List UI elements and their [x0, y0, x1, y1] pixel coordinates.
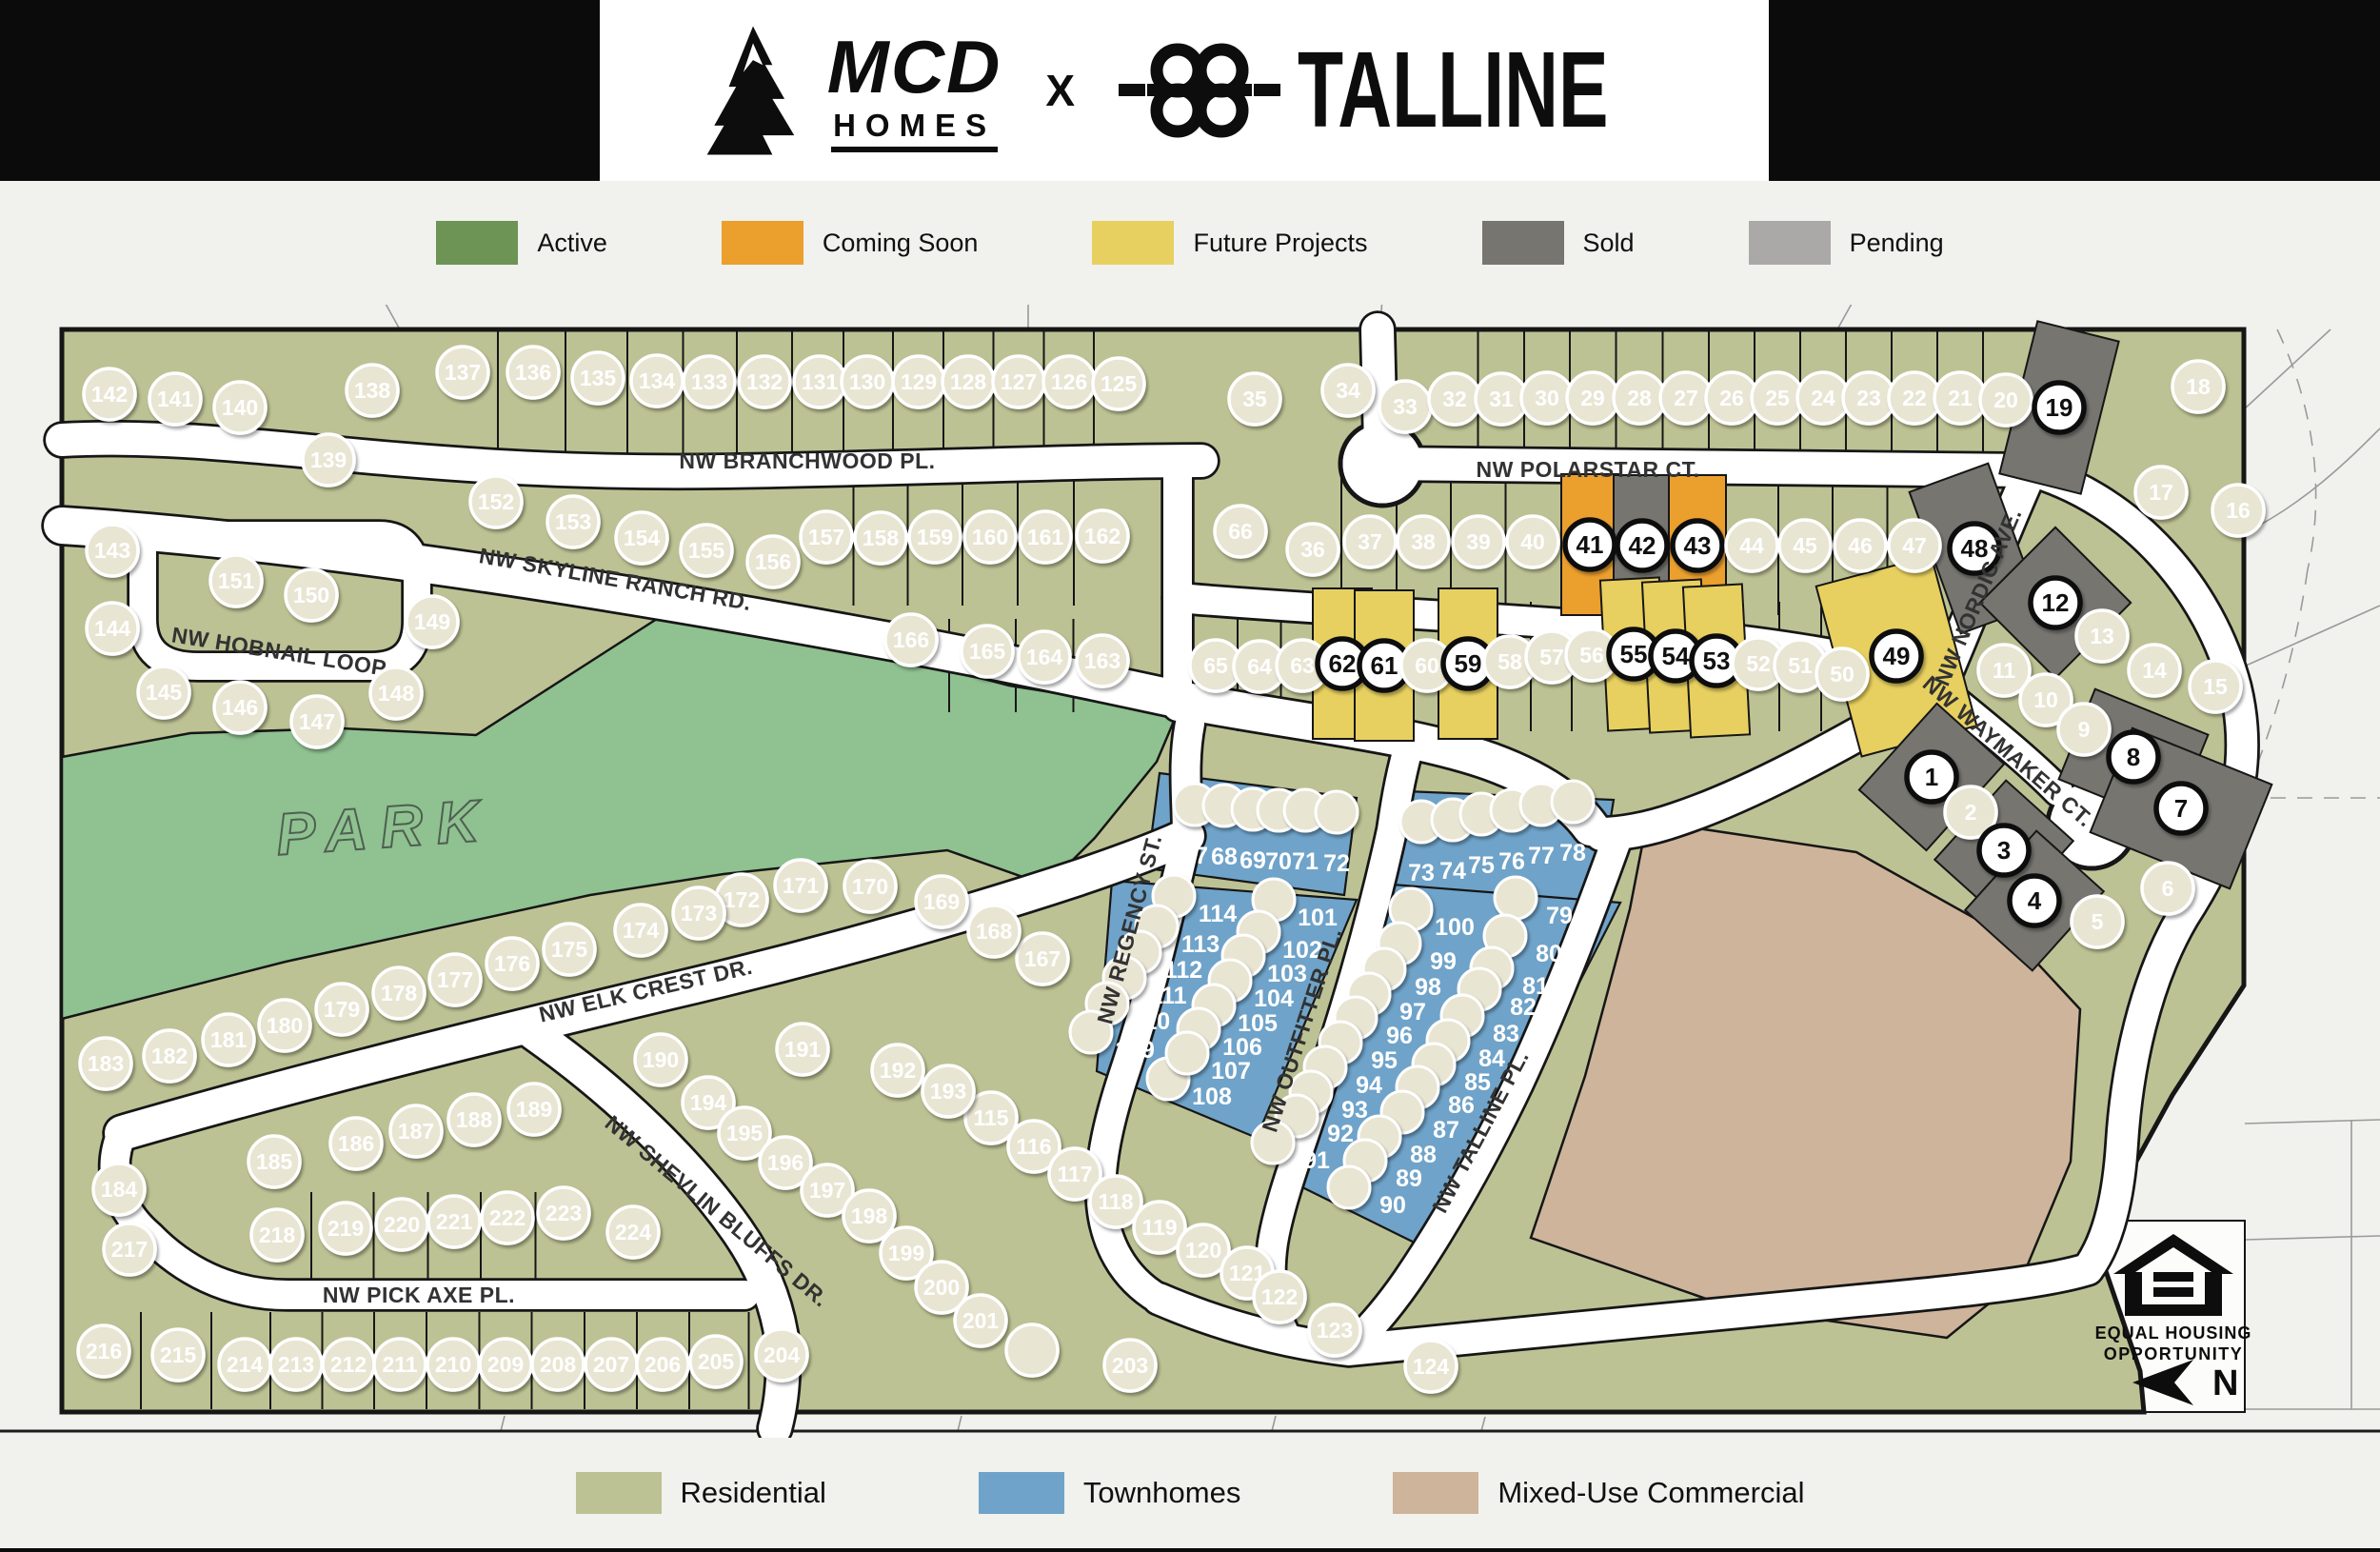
- svg-text:87: 87: [1433, 1117, 1459, 1144]
- svg-text:41: 41: [1577, 530, 1604, 559]
- lot-137: 137: [437, 347, 488, 398]
- svg-text:75: 75: [1468, 852, 1495, 879]
- svg-text:117: 117: [1057, 1162, 1092, 1186]
- svg-text:167: 167: [1024, 946, 1061, 971]
- svg-text:31: 31: [1489, 387, 1514, 411]
- svg-text:163: 163: [1084, 648, 1121, 673]
- svg-text:146: 146: [222, 695, 258, 720]
- svg-text:66: 66: [1228, 519, 1253, 544]
- svg-text:103: 103: [1267, 961, 1307, 987]
- svg-text:11: 11: [1993, 658, 2016, 683]
- svg-text:1: 1: [1925, 763, 1938, 791]
- svg-text:145: 145: [146, 680, 183, 705]
- lot-20: 20: [1980, 374, 2032, 426]
- svg-text:207: 207: [593, 1352, 629, 1377]
- lot-124: 124: [1405, 1341, 1457, 1392]
- lot-27: 27: [1660, 372, 1712, 424]
- svg-text:133: 133: [691, 369, 727, 394]
- lot-33: 33: [1379, 381, 1431, 432]
- legend-label-mixed-use-commercial: Mixed-Use Commercial: [1497, 1476, 1804, 1510]
- lot-177: 177: [429, 954, 481, 1005]
- svg-text:64: 64: [1247, 654, 1272, 679]
- legend-item-future-projects: Future Projects: [1092, 221, 1367, 265]
- lot-209: 209: [480, 1339, 531, 1390]
- svg-text:176: 176: [494, 951, 530, 976]
- lot-218: 218: [251, 1209, 303, 1261]
- lot-50: 50: [1816, 648, 1868, 700]
- svg-text:114: 114: [1199, 901, 1237, 927]
- svg-text:OPPORTUNITY: OPPORTUNITY: [2104, 1344, 2244, 1363]
- svg-text:82: 82: [1510, 994, 1537, 1021]
- svg-text:67: 67: [1181, 843, 1208, 869]
- lot-128: 128: [942, 356, 994, 408]
- svg-text:EQUAL HOUSING: EQUAL HOUSING: [2095, 1323, 2252, 1343]
- svg-text:142: 142: [91, 382, 128, 407]
- legend-swatch-active: [436, 221, 518, 265]
- lot-35: 35: [1229, 373, 1280, 425]
- lot-142: 142: [84, 368, 135, 420]
- svg-text:200: 200: [923, 1275, 960, 1300]
- svg-text:80: 80: [1536, 941, 1562, 967]
- lot-160: 160: [964, 511, 1016, 563]
- knot-icon: [1119, 38, 1280, 143]
- lot-190: 190: [635, 1034, 686, 1085]
- lot-163: 163: [1077, 635, 1128, 686]
- svg-text:183: 183: [88, 1051, 124, 1076]
- svg-text:219: 219: [327, 1216, 364, 1241]
- svg-text:119: 119: [1141, 1215, 1177, 1240]
- svg-text:137: 137: [445, 360, 481, 385]
- svg-text:140: 140: [222, 395, 258, 420]
- svg-text:224: 224: [615, 1220, 652, 1244]
- lot-126: 126: [1043, 356, 1095, 408]
- svg-text:139: 139: [310, 448, 347, 472]
- lot-210: 210: [427, 1339, 479, 1390]
- svg-text:211: 211: [382, 1352, 417, 1377]
- svg-text:46: 46: [1848, 533, 1873, 558]
- svg-text:47: 47: [1902, 533, 1927, 558]
- svg-text:164: 164: [1026, 645, 1063, 669]
- svg-text:181: 181: [210, 1027, 248, 1052]
- svg-text:148: 148: [378, 681, 415, 706]
- svg-text:14: 14: [2142, 658, 2167, 683]
- svg-text:175: 175: [551, 937, 588, 962]
- lot-129: 129: [893, 356, 944, 408]
- svg-text:6: 6: [2162, 876, 2174, 901]
- lot-156: 156: [747, 536, 799, 587]
- svg-text:30: 30: [1535, 386, 1559, 410]
- svg-text:203: 203: [1112, 1353, 1148, 1378]
- talline-wordmark: TALLINE: [1298, 29, 1608, 152]
- svg-text:61: 61: [1371, 651, 1398, 680]
- street-label-nw-polarstar-ct: NW POLARSTAR CT.: [1476, 457, 1699, 482]
- lot-145: 145: [138, 667, 189, 718]
- lot-159: 159: [909, 511, 961, 563]
- svg-text:99: 99: [1430, 948, 1457, 975]
- svg-text:189: 189: [516, 1097, 552, 1122]
- svg-text:94: 94: [1356, 1072, 1382, 1099]
- svg-text:149: 149: [414, 609, 450, 634]
- svg-text:155: 155: [688, 538, 725, 563]
- svg-text:105: 105: [1238, 1010, 1278, 1037]
- svg-text:182: 182: [151, 1044, 188, 1068]
- lot-40: 40: [1507, 516, 1558, 567]
- mountain-icon: [692, 24, 814, 157]
- svg-text:194: 194: [690, 1090, 727, 1115]
- svg-text:55: 55: [1620, 640, 1648, 668]
- svg-text:71: 71: [1292, 848, 1319, 875]
- svg-text:132: 132: [746, 369, 783, 394]
- lot-171: 171: [775, 860, 826, 911]
- svg-text:159: 159: [917, 525, 953, 549]
- svg-text:97: 97: [1399, 999, 1426, 1025]
- lot-223: 223: [538, 1187, 589, 1239]
- svg-text:50: 50: [1830, 662, 1854, 686]
- legend-item-townhomes: Townhomes: [979, 1472, 1240, 1514]
- svg-text:222: 222: [489, 1205, 526, 1230]
- lot-206: 206: [637, 1339, 688, 1390]
- svg-text:216: 216: [86, 1339, 122, 1363]
- lot-122: 122: [1254, 1271, 1305, 1323]
- lot-25: 25: [1752, 372, 1803, 424]
- legend-label-coming-soon: Coming Soon: [823, 229, 979, 258]
- svg-text:3: 3: [1997, 836, 2011, 865]
- svg-text:107: 107: [1211, 1058, 1251, 1084]
- street-label-nw-pick-axe-pl: NW PICK AXE PL.: [323, 1283, 515, 1307]
- svg-text:90: 90: [1379, 1192, 1406, 1219]
- svg-text:127: 127: [1001, 369, 1037, 394]
- svg-text:39: 39: [1466, 529, 1491, 554]
- svg-text:191: 191: [784, 1037, 822, 1062]
- svg-text:135: 135: [580, 366, 617, 390]
- svg-text:129: 129: [901, 369, 937, 394]
- svg-text:96: 96: [1386, 1023, 1413, 1049]
- lot-17: 17: [2135, 467, 2187, 518]
- lot-49: 49: [1872, 631, 1921, 681]
- svg-text:197: 197: [809, 1178, 845, 1203]
- lot-12: 12: [2031, 578, 2080, 627]
- lot-178: 178: [373, 967, 425, 1019]
- lot-22: 22: [1889, 372, 1940, 424]
- lot-219: 219: [320, 1203, 371, 1254]
- lot-155: 155: [681, 525, 732, 576]
- lot-158: 158: [855, 512, 906, 564]
- svg-text:150: 150: [293, 583, 329, 607]
- svg-text:21: 21: [1948, 386, 1973, 410]
- lot-205: 205: [690, 1336, 742, 1387]
- lot-146: 146: [214, 682, 266, 733]
- svg-text:95: 95: [1371, 1047, 1398, 1074]
- svg-text:162: 162: [1084, 524, 1121, 548]
- svg-text:72: 72: [1323, 850, 1350, 877]
- svg-text:169: 169: [923, 889, 960, 914]
- homes-wordmark: HOMES: [831, 106, 998, 152]
- lot-19: 19: [2034, 383, 2084, 432]
- lot-192: 192: [872, 1045, 923, 1096]
- svg-text:196: 196: [767, 1150, 803, 1175]
- svg-text:13: 13: [2090, 624, 2114, 648]
- lot-42: 42: [1617, 521, 1667, 570]
- svg-text:57: 57: [1539, 645, 1564, 669]
- lot-220: 220: [376, 1199, 427, 1250]
- header-bar: MCD HOMES X TALLINE: [0, 0, 2380, 181]
- svg-text:152: 152: [478, 489, 514, 514]
- svg-text:5: 5: [2092, 909, 2104, 934]
- lot-14: 14: [2129, 645, 2180, 696]
- lot-173: 173: [673, 887, 724, 939]
- svg-text:213: 213: [278, 1352, 314, 1377]
- lot-153: 153: [547, 496, 599, 547]
- svg-text:201: 201: [962, 1308, 1000, 1333]
- svg-text:151: 151: [218, 568, 255, 593]
- svg-text:59: 59: [1455, 649, 1482, 678]
- svg-text:208: 208: [540, 1352, 577, 1377]
- lot-8: 8: [2109, 732, 2158, 782]
- svg-text:106: 106: [1222, 1034, 1262, 1061]
- lot-41: 41: [1565, 520, 1615, 569]
- svg-text:136: 136: [515, 360, 551, 385]
- lot-201: 201: [955, 1295, 1006, 1346]
- legend-item-mixed-use-commercial: Mixed-Use Commercial: [1393, 1472, 1804, 1514]
- svg-text:173: 173: [681, 901, 717, 925]
- lot-138: 138: [347, 365, 398, 416]
- lot-208: 208: [532, 1339, 584, 1390]
- lot-150: 150: [286, 569, 337, 621]
- lot-7: 7: [2156, 784, 2206, 833]
- svg-text:70: 70: [1265, 848, 1292, 875]
- svg-text:118: 118: [1098, 1189, 1133, 1214]
- svg-text:178: 178: [381, 981, 418, 1005]
- site-map: 1421411401391381371361351341331321311301…: [0, 305, 2380, 1438]
- lot-151: 151: [210, 555, 262, 607]
- lot-215: 215: [152, 1329, 204, 1381]
- svg-text:10: 10: [2033, 687, 2058, 712]
- svg-text:158: 158: [863, 526, 900, 550]
- lot-131: 131: [794, 356, 845, 408]
- svg-text:199: 199: [888, 1241, 924, 1265]
- svg-text:177: 177: [437, 967, 473, 992]
- lot-182: 182: [144, 1030, 195, 1082]
- svg-text:52: 52: [1746, 651, 1771, 676]
- lot-222: 222: [482, 1192, 533, 1244]
- lot-188: 188: [448, 1094, 500, 1145]
- svg-text:186: 186: [338, 1131, 374, 1156]
- legend-swatch-sold: [1482, 221, 1564, 265]
- svg-text:65: 65: [1203, 653, 1228, 678]
- lot-185: 185: [248, 1136, 300, 1187]
- svg-text:128: 128: [950, 369, 987, 394]
- svg-text:104: 104: [1254, 985, 1294, 1012]
- svg-text:172: 172: [724, 887, 760, 912]
- svg-text:42: 42: [1629, 531, 1656, 560]
- lot-31: 31: [1476, 373, 1527, 425]
- svg-text:51: 51: [1788, 653, 1813, 678]
- svg-text:180: 180: [267, 1013, 303, 1038]
- svg-text:111: 111: [1150, 983, 1187, 1009]
- lot-203: 203: [1104, 1340, 1156, 1391]
- svg-text:195: 195: [726, 1121, 764, 1145]
- lot-217: 217: [104, 1224, 155, 1275]
- lot-30: 30: [1521, 372, 1573, 424]
- svg-text:223: 223: [545, 1201, 582, 1225]
- svg-text:198: 198: [851, 1204, 888, 1228]
- lot-165: 165: [962, 626, 1013, 677]
- lot-186: 186: [330, 1118, 382, 1169]
- lot-16: 16: [2212, 485, 2264, 536]
- lot-140: 140: [214, 382, 266, 433]
- legend-label-active: Active: [537, 229, 607, 258]
- svg-text:54: 54: [1662, 642, 1690, 670]
- svg-text:115: 115: [973, 1105, 1008, 1130]
- lot-46: 46: [1835, 520, 1886, 571]
- lot-174: 174: [615, 905, 666, 956]
- svg-text:22: 22: [1902, 386, 1927, 410]
- lot-9: 9: [2058, 704, 2110, 755]
- lot-unlabeled: [1006, 1324, 1058, 1376]
- svg-text:126: 126: [1051, 369, 1087, 394]
- legend-swatch-residential: [576, 1472, 662, 1514]
- svg-text:190: 190: [643, 1047, 679, 1072]
- lot-183: 183: [80, 1038, 131, 1089]
- svg-text:168: 168: [976, 919, 1013, 944]
- lot-132: 132: [739, 356, 790, 408]
- svg-text:23: 23: [1856, 386, 1881, 410]
- svg-text:221: 221: [436, 1209, 473, 1234]
- svg-text:185: 185: [256, 1149, 293, 1174]
- lot-26: 26: [1706, 372, 1757, 424]
- svg-text:4: 4: [2028, 886, 2042, 915]
- svg-text:60: 60: [1415, 653, 1439, 678]
- svg-text:83: 83: [1493, 1021, 1519, 1047]
- svg-text:123: 123: [1317, 1318, 1353, 1343]
- lot-193: 193: [922, 1065, 974, 1117]
- svg-text:174: 174: [623, 918, 660, 943]
- lot-207: 207: [585, 1339, 637, 1390]
- svg-text:187: 187: [398, 1119, 434, 1144]
- svg-text:37: 37: [1358, 529, 1382, 554]
- svg-text:18: 18: [2186, 374, 2211, 399]
- svg-text:138: 138: [354, 378, 391, 403]
- svg-text:69: 69: [1240, 847, 1266, 874]
- svg-text:38: 38: [1411, 529, 1436, 554]
- svg-text:26: 26: [1719, 386, 1744, 410]
- svg-text:192: 192: [880, 1058, 916, 1083]
- legend-label-residential: Residential: [681, 1476, 826, 1510]
- lot-204: 204: [756, 1329, 807, 1381]
- svg-text:28: 28: [1627, 386, 1652, 410]
- lot-162: 162: [1077, 510, 1128, 562]
- lot-144: 144: [87, 603, 138, 654]
- lot-123: 123: [1309, 1304, 1360, 1356]
- legend-swatch-pending: [1749, 221, 1831, 265]
- svg-text:154: 154: [624, 526, 661, 550]
- svg-text:35: 35: [1242, 387, 1267, 411]
- lot-221: 221: [428, 1196, 480, 1247]
- lot-214: 214: [219, 1339, 270, 1390]
- svg-text:16: 16: [2226, 498, 2251, 523]
- lot-34: 34: [1322, 365, 1374, 416]
- svg-text:100: 100: [1435, 914, 1475, 941]
- lot-161: 161: [1020, 511, 1071, 563]
- legend-swatch-future-projects: [1092, 221, 1174, 265]
- svg-text:125: 125: [1101, 371, 1138, 396]
- svg-text:171: 171: [783, 873, 820, 898]
- svg-text:89: 89: [1396, 1165, 1422, 1192]
- lot-175: 175: [544, 924, 595, 975]
- brand-separator: X: [1045, 65, 1075, 116]
- lot-180: 180: [259, 1000, 310, 1051]
- lot-216: 216: [78, 1325, 129, 1377]
- svg-text:15: 15: [2203, 674, 2228, 699]
- svg-text:56: 56: [1579, 643, 1604, 667]
- svg-text:17: 17: [2149, 480, 2173, 505]
- svg-text:93: 93: [1341, 1097, 1368, 1124]
- svg-text:215: 215: [160, 1343, 197, 1367]
- svg-text:43: 43: [1684, 531, 1712, 560]
- logo-panel: MCD HOMES X TALLINE: [600, 0, 1769, 181]
- lot-211: 211: [374, 1339, 426, 1390]
- svg-text:157: 157: [808, 525, 844, 549]
- status-legend: ActiveComing SoonFuture ProjectsSoldPend…: [0, 181, 2380, 305]
- svg-text:212: 212: [330, 1352, 367, 1377]
- lot-127: 127: [993, 356, 1044, 408]
- svg-text:160: 160: [972, 525, 1008, 549]
- mcd-wordmark: MCD: [827, 30, 1002, 104]
- svg-text:98: 98: [1415, 974, 1441, 1001]
- svg-text:49: 49: [1883, 642, 1911, 670]
- svg-text:144: 144: [94, 616, 131, 641]
- lot-32: 32: [1429, 373, 1480, 425]
- svg-text:165: 165: [969, 639, 1006, 664]
- lot-191: 191: [777, 1024, 828, 1075]
- svg-text:179: 179: [324, 997, 360, 1022]
- lot-37: 37: [1344, 516, 1396, 567]
- svg-text:91: 91: [1303, 1147, 1330, 1174]
- svg-text:76: 76: [1498, 848, 1525, 875]
- lot-4: 4: [2010, 876, 2059, 925]
- lot-168: 168: [968, 905, 1020, 957]
- svg-text:62: 62: [1329, 649, 1357, 678]
- lot-29: 29: [1567, 372, 1618, 424]
- svg-text:9: 9: [2078, 717, 2091, 742]
- svg-text:147: 147: [299, 709, 335, 734]
- lot-43: 43: [1673, 521, 1722, 570]
- svg-text:116: 116: [1016, 1134, 1051, 1159]
- svg-text:101: 101: [1298, 905, 1338, 931]
- lot-169: 169: [916, 876, 967, 927]
- lot-170: 170: [844, 861, 896, 912]
- lot-136: 136: [507, 347, 559, 398]
- legend-label-townhomes: Townhomes: [1083, 1476, 1240, 1510]
- svg-text:20: 20: [1993, 388, 2018, 412]
- svg-text:120: 120: [1185, 1238, 1221, 1263]
- svg-text:44: 44: [1739, 533, 1764, 558]
- svg-text:134: 134: [639, 368, 676, 393]
- lot-130: 130: [842, 356, 893, 408]
- svg-text:73: 73: [1408, 860, 1435, 886]
- svg-text:122: 122: [1261, 1284, 1298, 1309]
- svg-text:109: 109: [1115, 1037, 1155, 1064]
- svg-text:19: 19: [2046, 393, 2073, 422]
- legend-label-future-projects: Future Projects: [1193, 229, 1367, 258]
- svg-text:25: 25: [1765, 386, 1790, 410]
- svg-text:34: 34: [1336, 378, 1360, 403]
- svg-text:8: 8: [2127, 743, 2140, 771]
- svg-text:193: 193: [930, 1079, 966, 1104]
- svg-text:33: 33: [1393, 394, 1418, 419]
- svg-text:214: 214: [227, 1352, 264, 1377]
- svg-text:78: 78: [1559, 840, 1586, 866]
